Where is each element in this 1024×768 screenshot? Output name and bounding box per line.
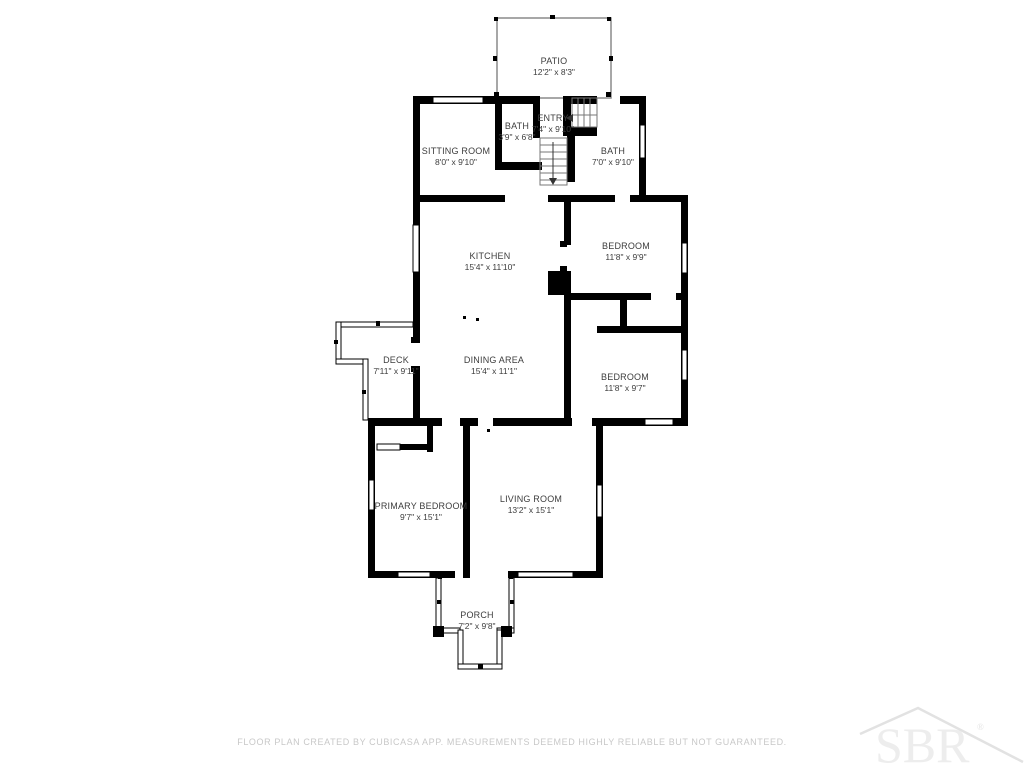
sbr-watermark-mark: ® bbox=[977, 722, 984, 732]
sbr-watermark-text: SBR bbox=[875, 717, 970, 768]
room-label-primary-bedroom: PRIMARY BEDROOM9'7" x 15'1" bbox=[375, 501, 468, 523]
closet-opening bbox=[377, 444, 400, 450]
chimney-block bbox=[548, 271, 571, 295]
room-label-bedroom-1: BEDROOM11'8" x 9'9" bbox=[602, 241, 650, 263]
room-label-bath-small: BATH3'9" x 6'8" bbox=[498, 121, 535, 143]
room-label-living-room: LIVING ROOM13'2" x 15'1" bbox=[500, 494, 562, 516]
room-label-bath-right: BATH7'0" x 9'10" bbox=[592, 146, 634, 168]
room-label-kitchen: KITCHEN15'4" x 11'10" bbox=[465, 251, 516, 273]
room-label-dining-area: DINING AREA15'4" x 11'1" bbox=[464, 355, 524, 377]
sbr-watermark-logo: SBR ® bbox=[855, 698, 1024, 768]
stair-down-arrow-icon bbox=[549, 178, 557, 185]
room-label-patio: PATIO12'2" x 8'3" bbox=[533, 56, 575, 78]
room-label-sitting-room: SITTING ROOM8'0" x 9'10" bbox=[422, 146, 490, 168]
room-label-bedroom-2: BEDROOM11'8" x 9'7" bbox=[601, 372, 649, 394]
room-label-porch: PORCH7'2" x 9'8" bbox=[458, 610, 495, 632]
floorplan-drawing bbox=[0, 0, 1024, 768]
room-label-deck: DECK7'11" x 9'11" bbox=[373, 355, 418, 377]
room-label-entry: ENTRY7'4" x 9'10" bbox=[532, 113, 574, 135]
floorplan-canvas: PATIO12'2" x 8'3" BATH3'9" x 6'8" ENTRY7… bbox=[0, 0, 1024, 768]
